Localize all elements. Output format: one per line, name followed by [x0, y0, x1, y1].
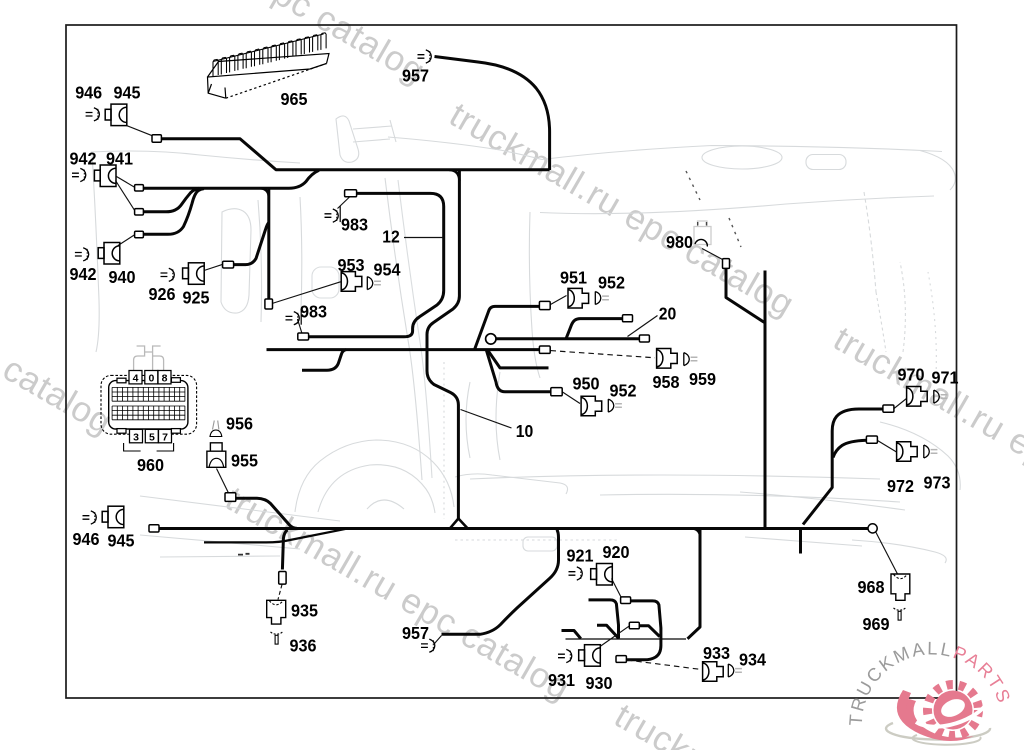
- svg-text:956: 956: [226, 414, 253, 434]
- svg-text:926: 926: [149, 284, 176, 304]
- svg-text:959: 959: [689, 369, 716, 389]
- svg-text:925: 925: [183, 288, 210, 308]
- svg-text:20: 20: [659, 304, 677, 324]
- svg-text:945: 945: [108, 531, 135, 551]
- svg-text:983: 983: [341, 215, 368, 235]
- svg-text:942: 942: [70, 149, 97, 169]
- svg-text:950: 950: [573, 374, 600, 394]
- svg-text:971: 971: [932, 368, 959, 388]
- svg-text:960: 960: [137, 455, 164, 475]
- svg-text:946: 946: [75, 83, 102, 103]
- svg-text:935: 935: [291, 601, 318, 621]
- svg-text:10: 10: [516, 421, 534, 441]
- svg-text:940: 940: [109, 267, 136, 287]
- svg-text:921: 921: [567, 546, 594, 566]
- svg-text:955: 955: [231, 451, 258, 471]
- svg-text:957: 957: [402, 66, 429, 86]
- svg-text:983: 983: [300, 302, 327, 322]
- svg-text:933: 933: [703, 643, 730, 663]
- svg-text:972: 972: [887, 476, 914, 496]
- svg-text:12: 12: [382, 227, 400, 247]
- svg-text:930: 930: [586, 673, 613, 693]
- svg-text:952: 952: [598, 273, 625, 293]
- svg-text:8: 8: [162, 373, 168, 385]
- svg-text:0: 0: [148, 373, 154, 385]
- svg-text:952: 952: [610, 381, 637, 401]
- svg-text:941: 941: [106, 149, 133, 169]
- svg-text:934: 934: [739, 650, 766, 670]
- svg-text:953: 953: [338, 255, 365, 275]
- svg-text:965: 965: [281, 89, 308, 109]
- svg-text:970: 970: [898, 365, 925, 385]
- svg-text:3: 3: [133, 432, 139, 444]
- svg-text:968: 968: [858, 577, 885, 597]
- svg-text:973: 973: [924, 473, 951, 493]
- svg-text:4: 4: [133, 373, 139, 385]
- svg-text:931: 931: [548, 670, 575, 690]
- svg-text:980: 980: [666, 232, 693, 252]
- svg-text:942: 942: [70, 264, 97, 284]
- svg-text:5: 5: [149, 432, 155, 444]
- svg-text:946: 946: [73, 529, 100, 549]
- svg-text:958: 958: [653, 372, 680, 392]
- svg-text:957: 957: [402, 623, 429, 643]
- svg-text:951: 951: [560, 268, 587, 288]
- svg-text:936: 936: [290, 636, 317, 656]
- svg-text:969: 969: [863, 614, 890, 634]
- svg-text:945: 945: [114, 82, 141, 102]
- svg-text:920: 920: [603, 542, 630, 562]
- svg-text:7: 7: [162, 432, 168, 444]
- svg-text:954: 954: [374, 260, 401, 280]
